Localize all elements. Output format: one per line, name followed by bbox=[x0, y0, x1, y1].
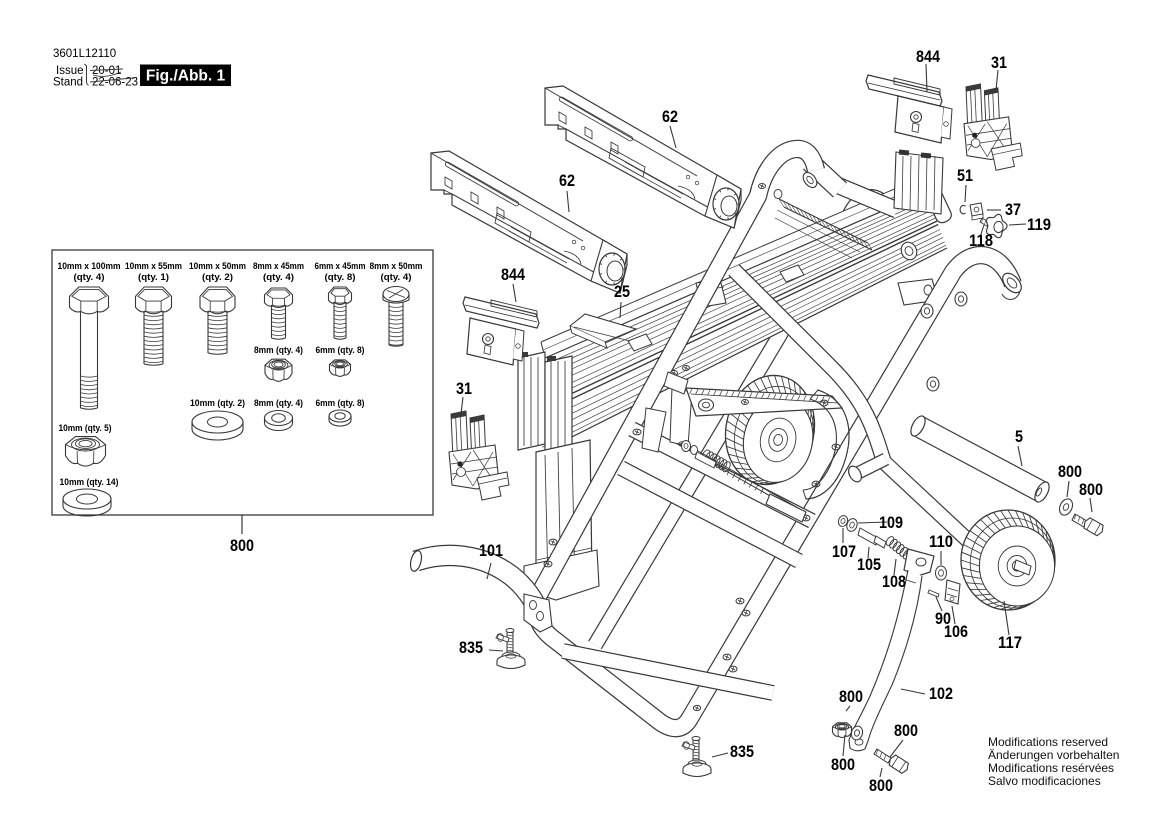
svg-text:6mm (qty. 8): 6mm (qty. 8) bbox=[316, 345, 365, 356]
svg-text:835: 835 bbox=[459, 639, 483, 657]
svg-text:800: 800 bbox=[869, 777, 893, 795]
svg-text:800: 800 bbox=[839, 688, 863, 706]
svg-text:Salvo modificaciones: Salvo modificaciones bbox=[988, 774, 1101, 788]
svg-text:835: 835 bbox=[730, 743, 754, 761]
svg-text:62: 62 bbox=[662, 108, 678, 126]
svg-text:10mm x 100mm: 10mm x 100mm bbox=[58, 261, 121, 272]
svg-text:(qty. 1): (qty. 1) bbox=[138, 272, 169, 283]
svg-text:109: 109 bbox=[879, 514, 903, 532]
svg-text:31: 31 bbox=[456, 380, 472, 398]
svg-text:20-01: 20-01 bbox=[92, 65, 121, 77]
svg-text:10mm x 50mm: 10mm x 50mm bbox=[189, 261, 246, 272]
svg-text:800: 800 bbox=[1079, 481, 1103, 499]
svg-text:6mm (qty. 8): 6mm (qty. 8) bbox=[316, 398, 365, 409]
svg-text:800: 800 bbox=[831, 756, 855, 774]
svg-text:Fig./Abb. 1: Fig./Abb. 1 bbox=[146, 68, 226, 85]
svg-text:117: 117 bbox=[998, 634, 1022, 652]
svg-text:8mm x 50mm: 8mm x 50mm bbox=[370, 261, 423, 272]
svg-text:Änderungen vorbehalten: Änderungen vorbehalten bbox=[988, 748, 1119, 762]
svg-text:(qty. 4): (qty. 4) bbox=[263, 272, 294, 283]
svg-text:800: 800 bbox=[1058, 463, 1082, 481]
svg-text:(qty. 4): (qty. 4) bbox=[74, 272, 105, 283]
svg-text:62: 62 bbox=[559, 172, 575, 190]
svg-text:Modifications resérvées: Modifications resérvées bbox=[988, 761, 1114, 775]
svg-text:118: 118 bbox=[969, 232, 993, 250]
svg-text:8mm (qty. 4): 8mm (qty. 4) bbox=[254, 398, 303, 409]
svg-text:8mm (qty. 4): 8mm (qty. 4) bbox=[254, 345, 303, 356]
svg-text:Issue: Issue bbox=[56, 65, 84, 77]
svg-text:10mm x 55mm: 10mm x 55mm bbox=[125, 261, 182, 272]
svg-text:102: 102 bbox=[929, 685, 953, 703]
svg-text:10mm (qty. 2): 10mm (qty. 2) bbox=[190, 398, 245, 409]
svg-text:101: 101 bbox=[479, 542, 503, 560]
svg-text:106: 106 bbox=[944, 623, 968, 641]
svg-text:10mm (qty. 5): 10mm (qty. 5) bbox=[59, 423, 112, 434]
svg-text:Stand: Stand bbox=[53, 77, 83, 89]
svg-text:800: 800 bbox=[894, 722, 918, 740]
svg-text:(qty. 4): (qty. 4) bbox=[381, 272, 412, 283]
svg-text:3601L12110: 3601L12110 bbox=[53, 48, 116, 60]
svg-text:(qty. 2): (qty. 2) bbox=[202, 272, 233, 283]
svg-text:108: 108 bbox=[882, 573, 906, 591]
svg-text:844: 844 bbox=[501, 266, 526, 284]
svg-text:119: 119 bbox=[1027, 216, 1051, 234]
svg-text:25: 25 bbox=[614, 283, 630, 301]
svg-text:110: 110 bbox=[929, 533, 953, 551]
svg-text:800: 800 bbox=[230, 537, 254, 555]
svg-text:107: 107 bbox=[832, 543, 856, 561]
svg-text:105: 105 bbox=[857, 556, 881, 574]
svg-text:Modifications reserved: Modifications reserved bbox=[988, 735, 1108, 749]
svg-text:51: 51 bbox=[957, 167, 973, 185]
svg-text:5: 5 bbox=[1015, 428, 1023, 446]
svg-text:31: 31 bbox=[991, 54, 1007, 72]
svg-text:844: 844 bbox=[916, 48, 941, 66]
svg-text:8mm x 45mm: 8mm x 45mm bbox=[253, 261, 304, 272]
svg-text:10mm (qty. 14): 10mm (qty. 14) bbox=[60, 477, 119, 488]
svg-text:(qty. 8): (qty. 8) bbox=[325, 272, 356, 283]
svg-text:6mm x 45mm: 6mm x 45mm bbox=[315, 261, 366, 272]
svg-text:37: 37 bbox=[1005, 201, 1021, 219]
